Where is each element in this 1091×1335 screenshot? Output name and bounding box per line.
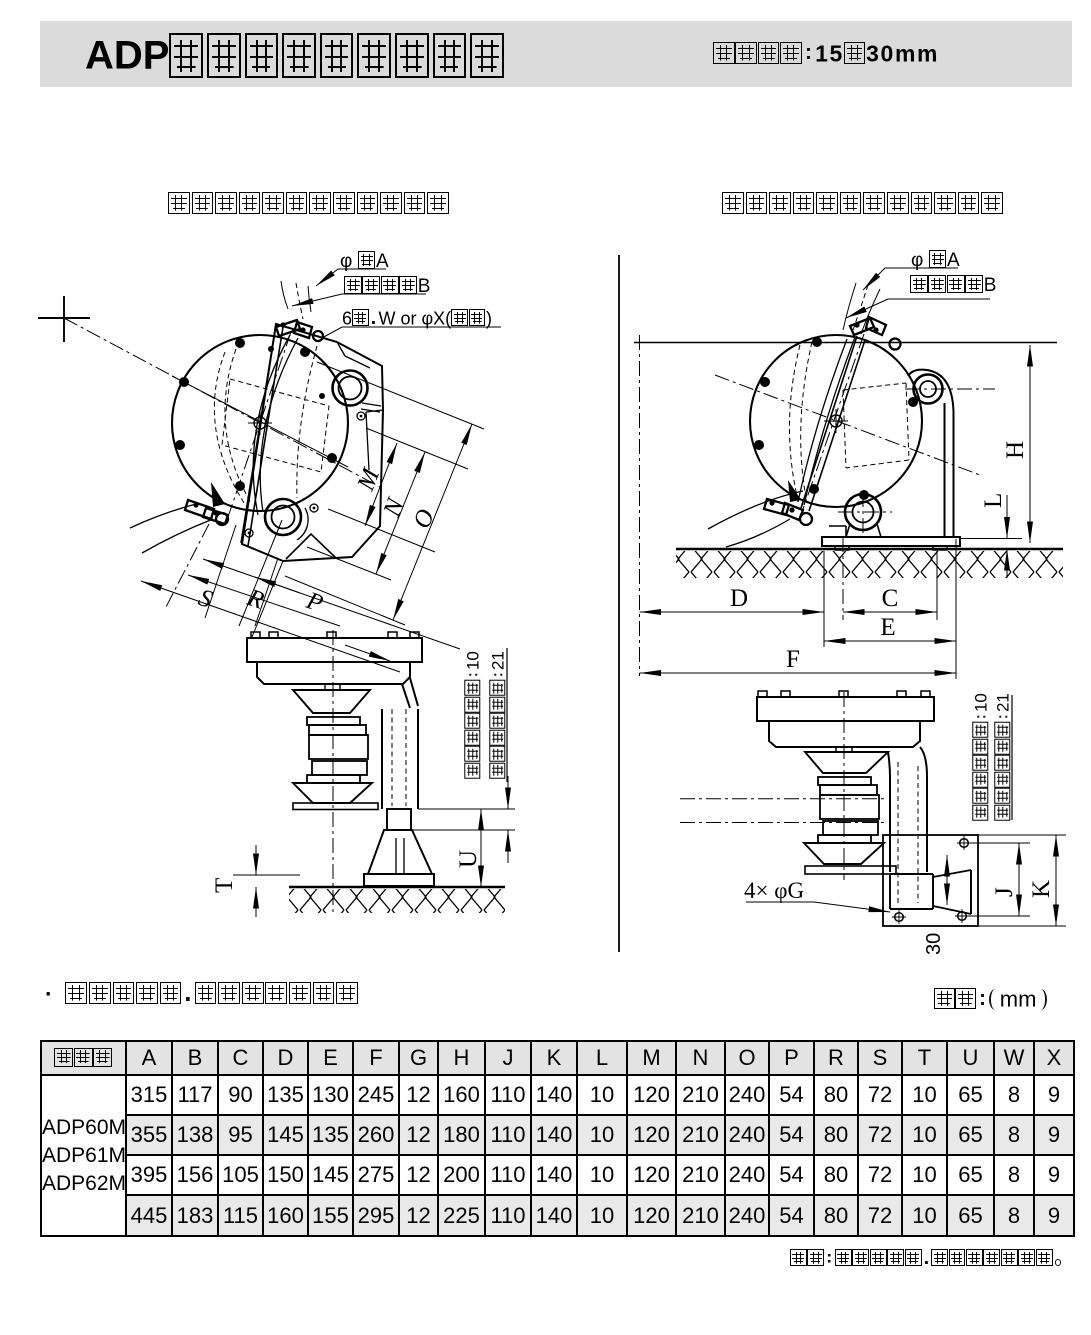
svg-text:D: D xyxy=(730,585,748,612)
svg-text:C: C xyxy=(882,585,899,612)
svg-text:S: S xyxy=(195,584,216,614)
svg-text:E: E xyxy=(880,614,895,641)
svg-text:L: L xyxy=(980,493,1007,508)
svg-text:H: H xyxy=(1002,441,1029,459)
svg-text:N: N xyxy=(378,494,410,521)
svg-text:F: F xyxy=(786,646,800,673)
svg-text:30: 30 xyxy=(923,933,945,955)
svg-text:T: T xyxy=(211,878,238,893)
svg-text:R: R xyxy=(243,584,267,615)
svg-text:O: O xyxy=(408,506,440,533)
svg-text:U: U xyxy=(455,850,482,868)
svg-text:P: P xyxy=(302,587,326,618)
svg-text:J: J xyxy=(991,887,1018,897)
svg-text:K: K xyxy=(1028,880,1055,898)
svg-text:4× φG: 4× φG xyxy=(744,878,804,903)
